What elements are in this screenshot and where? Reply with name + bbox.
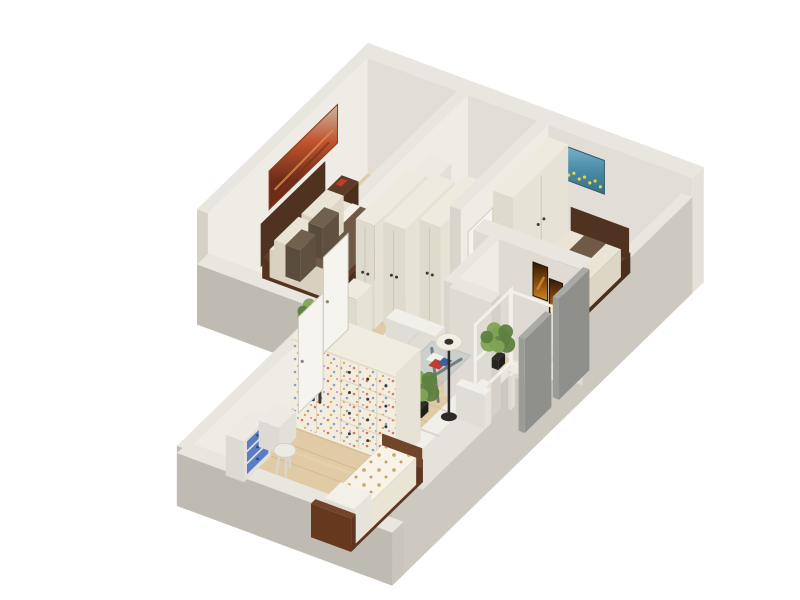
master-pillow-brown-2-south-face [286,245,301,282]
wardrobe-handle [537,223,540,226]
sectional-sofa-arm-east-face [485,390,491,430]
drawer-knob [366,418,369,421]
tall-closet-3-south-face [420,219,441,330]
nook-desk-leg-1-east-face [511,373,515,410]
stool-top [274,443,296,457]
art-flower-dot [583,176,586,179]
floor-lamp-shade-top [444,339,453,345]
nook-desk-leg-1-south-face [508,375,511,410]
art-flower-dot [578,177,581,180]
drawer-knob [348,371,351,374]
nook-plant-foliage [498,324,513,339]
door-handle [326,300,329,303]
gray-panel-2-south-face [519,337,525,433]
drawer-knob [348,432,351,435]
stool-leg [286,456,287,478]
drawer-knob [366,398,369,401]
dresser-knob [256,458,259,461]
closet-handle [431,274,434,277]
blue-dresser-south-face [226,435,244,483]
dresser-knob [256,446,259,449]
art-flower-dot [599,185,602,188]
drawer-knob [384,384,387,387]
dresser-knob [256,434,259,437]
kids-front-wall-east-face [392,522,403,586]
floorplan-3d-render [0,0,800,600]
wardrobe-handle [542,217,545,220]
drawer-knob [384,405,387,408]
drawer-knob [384,425,387,428]
living-plant-foliage [422,372,437,387]
drawer-knob [366,378,369,381]
floorplan-render-stage: 3D isometric floor plan render of a two-… [0,0,800,600]
drawer-knob [348,412,351,415]
kid-bed-footboard-east-face [351,514,356,552]
drawer-knob [348,391,351,394]
closet-handle [426,272,429,275]
closet-handle [395,276,398,279]
art-flower-dot [594,179,597,182]
gray-panel-1-south-face [553,297,559,400]
closet-handle [361,271,364,274]
art-flower-dot [572,172,575,175]
closet-handle [366,273,369,276]
art-flower-dot [588,181,591,184]
nook-plant-foliage [492,340,505,353]
nook-plant-foliage [481,331,494,344]
door-handle [301,360,304,363]
closet-handle [390,274,393,277]
north-wall-east-face [692,167,703,293]
drawer-knob [366,439,369,442]
